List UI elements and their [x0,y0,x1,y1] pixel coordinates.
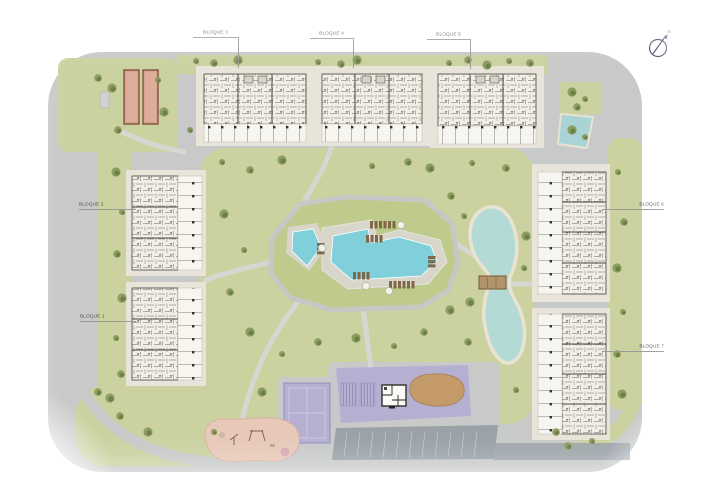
site-plan-svg: N [0,0,705,501]
building-bloque-5 [430,66,544,148]
block-label-bloque-6[interactable]: BLOQUE 6 [602,200,664,210]
block-label-bloque-3[interactable]: BLOQUE 3 [193,28,238,38]
building-bloque-6 [532,164,610,302]
utility-stub [100,92,109,108]
block-label-bloque-7[interactable]: BLOQUE 7 [602,342,664,352]
building-bloque-3 [196,66,314,146]
clubhouse-zone [336,365,471,423]
lake-bridge [479,276,506,289]
building-bloque-4 [314,66,430,146]
block-label-text: BLOQUE 2 [79,202,123,208]
block-label-text: BLOQUE 5 [432,32,466,38]
block-label-bloque-5[interactable]: BLOQUE 5 [427,30,470,40]
block-label-text: BLOQUE 7 [616,344,664,350]
block-label-bloque-1[interactable]: BLOQUE 1 [80,312,136,322]
leader-line [470,39,471,69]
block-label-bloque-2[interactable]: BLOQUE 2 [79,200,136,210]
compass-north-label: N [668,29,671,34]
block-label-bloque-4[interactable]: BLOQUE 4 [310,29,353,39]
pool-area [271,197,458,310]
building-bloque-7 [532,308,610,440]
block-label-text: BLOQUE 6 [616,202,664,208]
block-label-text: BLOQUE 3 [198,30,233,36]
gym-building [382,385,406,409]
masterplan-canvas: N BLOQUE 3 BLOQUE 4 BLOQUE 5 BLOQUE 2 BL… [0,0,705,501]
block-label-text: BLOQUE 1 [80,314,124,320]
building-bloque-2 [126,170,206,276]
sand-area [410,374,465,406]
north-compass: N [650,29,671,57]
playground [205,418,299,462]
leader-line [353,38,354,68]
building-bloque-1 [126,282,206,386]
leader-line [238,37,239,68]
block-label-text: BLOQUE 4 [315,31,349,37]
